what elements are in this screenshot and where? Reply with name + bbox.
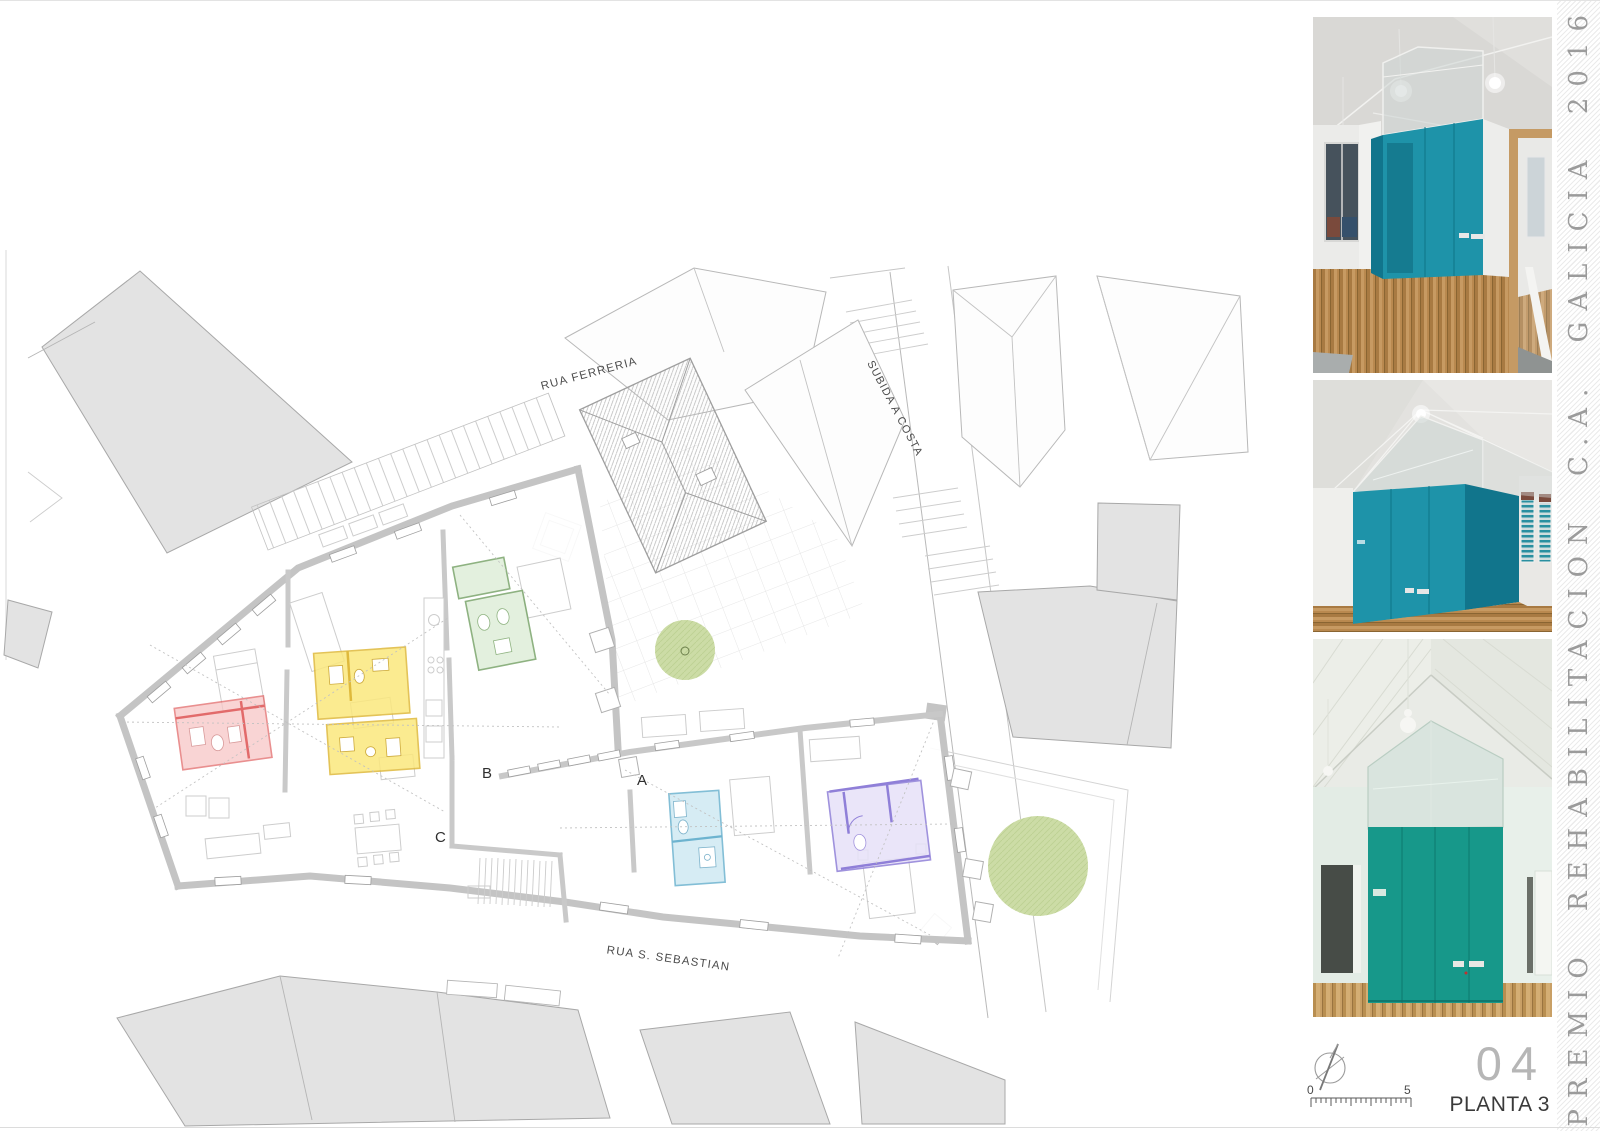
interior-photo-teal-volume-glass-gable: [1313, 380, 1552, 632]
section-marker-c: C: [435, 829, 446, 846]
interior-photo-corridor-teal-volume: [1313, 17, 1552, 373]
sheet-number: 04: [1420, 1038, 1546, 1090]
north-arrow-icon: [1315, 1044, 1345, 1090]
scale-start-label: 0: [1307, 1083, 1314, 1097]
interior-photo-teal-volume-frontal: [1313, 639, 1552, 1017]
award-title-strip: PREMIO REHABILITACION C.A. GALICIA 2016: [1557, 0, 1600, 1131]
scale-bar: [1311, 1098, 1411, 1107]
page-edge-bottom: [0, 1127, 1600, 1128]
section-marker-b: B: [482, 765, 492, 782]
room-red: [174, 696, 272, 770]
street-label-bottom: RUA S. SEBASTIAN: [606, 944, 731, 973]
section-marker-a: A: [637, 772, 647, 789]
room-blue: [669, 790, 725, 885]
room-yellow: [314, 647, 420, 776]
tree-large: [988, 816, 1088, 916]
tree-small: [655, 620, 715, 680]
page-edge-top: [0, 0, 1600, 1]
sheet-title: PLANTA 3: [1400, 1093, 1550, 1117]
presentation-board: RUA FERRERIA SUBIDA A COSTA RUA S. SEBAS…: [0, 0, 1600, 1131]
award-title-text: PREMIO REHABILITACION C.A. GALICIA 2016: [1564, 4, 1594, 1127]
